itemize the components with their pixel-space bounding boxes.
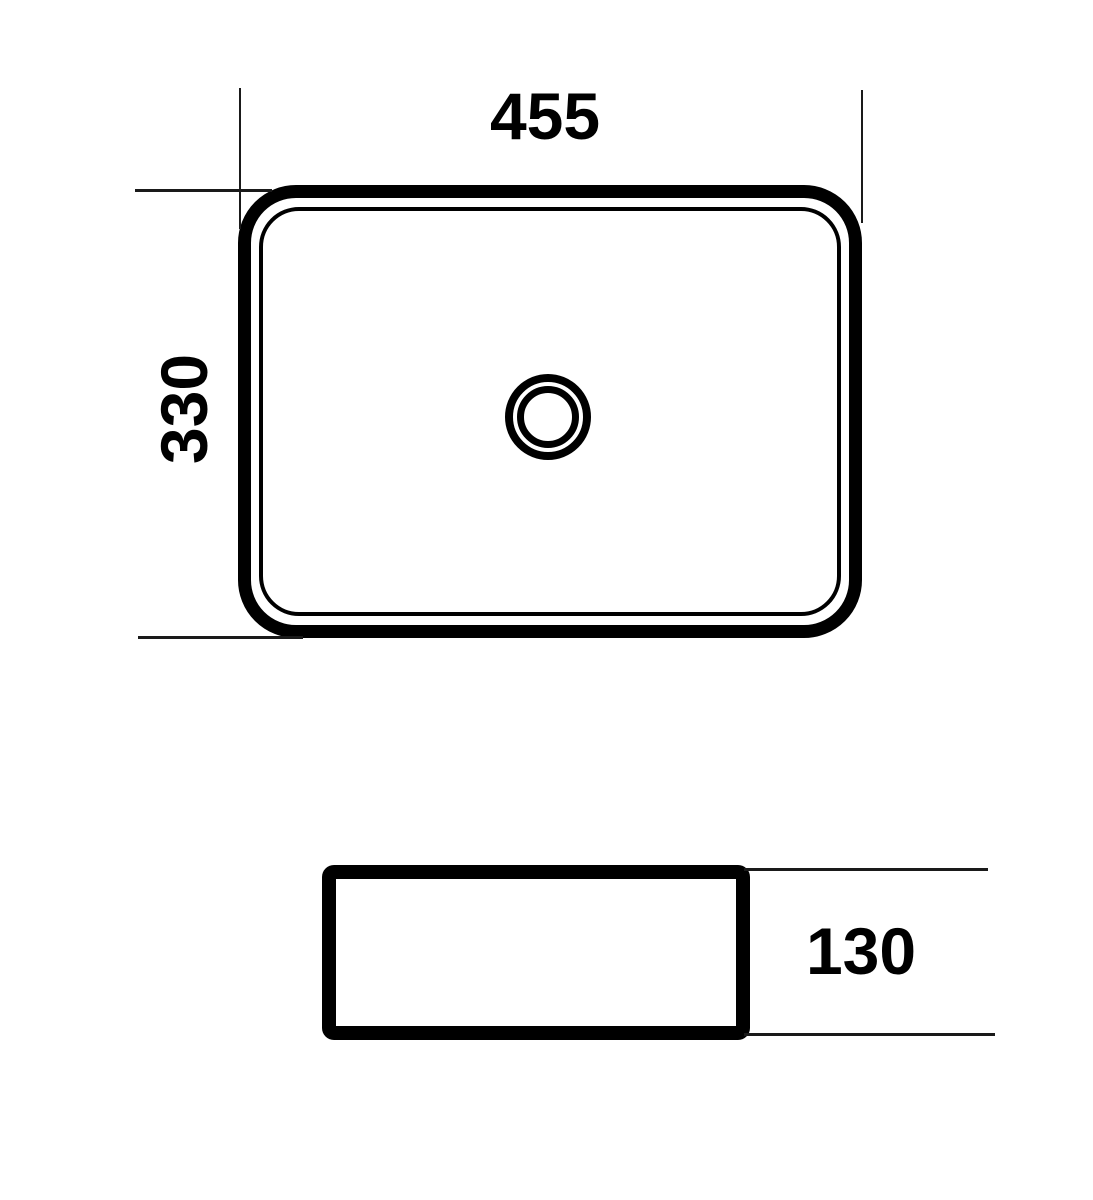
- dimension-height-label: 130: [741, 918, 981, 984]
- basin-side-view-outline: [322, 865, 750, 1040]
- extension-line-height-top: [744, 868, 988, 871]
- extension-line-depth-bottom: [138, 636, 303, 639]
- dimension-depth-label: 330: [151, 289, 217, 529]
- extension-line-width-right: [861, 90, 863, 223]
- dimension-width-label: 455: [425, 83, 665, 149]
- drawing-canvas: 455 330 130: [0, 0, 1093, 1200]
- drain-inner-ring-icon: [517, 386, 579, 448]
- extension-line-depth-top: [135, 189, 272, 192]
- extension-line-height-bottom: [744, 1033, 995, 1036]
- extension-line-width-left: [239, 88, 241, 229]
